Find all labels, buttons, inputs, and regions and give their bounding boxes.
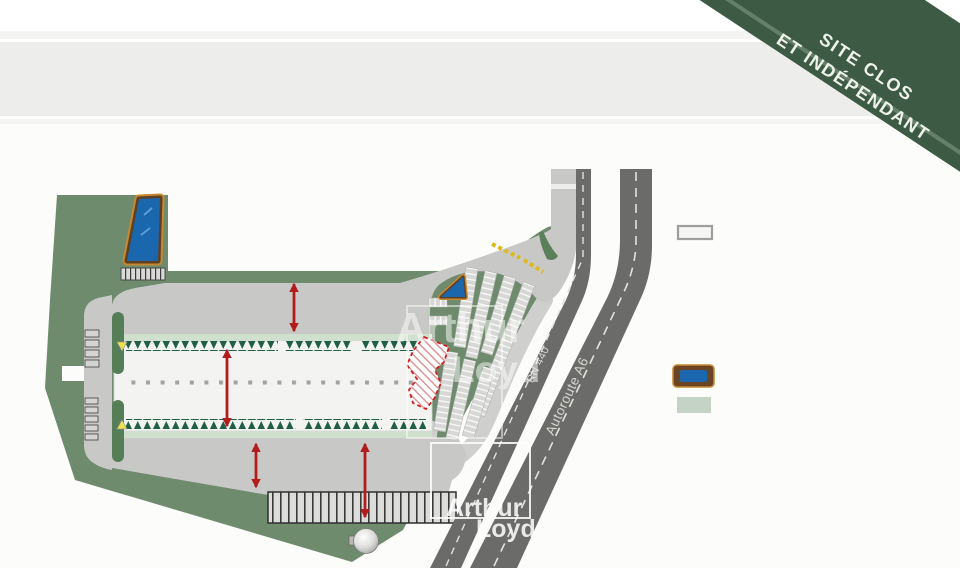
building-north-buffer bbox=[114, 334, 432, 341]
legend-swatch-basin bbox=[680, 370, 707, 382]
north-parking-strip bbox=[121, 268, 165, 280]
south-parking-strip bbox=[268, 492, 456, 523]
tree-row-south bbox=[126, 419, 426, 429]
watermark-text: Arthur bbox=[396, 304, 524, 351]
legend-swatch-building bbox=[678, 226, 712, 239]
site-plan-canvas: RN 440 Autoroute A6 Arthur Loyd Arthur L… bbox=[0, 0, 960, 568]
column-dotted-line bbox=[130, 380, 420, 385]
tree-row-gap bbox=[296, 419, 303, 429]
entrance-crosswalk bbox=[551, 184, 577, 189]
site-plan-page: RN 440 Autoroute A6 Arthur Loyd Arthur L… bbox=[0, 0, 960, 568]
tree-row-gap bbox=[352, 341, 361, 351]
tree-row-north bbox=[126, 341, 426, 351]
tree-row-gap bbox=[382, 419, 390, 429]
watermark-text: Loyd bbox=[452, 349, 540, 390]
west-hedge-south bbox=[112, 400, 124, 462]
header-stripe-bottom bbox=[0, 119, 960, 124]
legend-swatch-greenspace bbox=[677, 397, 711, 413]
building-south-buffer bbox=[114, 431, 432, 438]
building-interior bbox=[114, 341, 432, 431]
tree-row-gap bbox=[278, 341, 285, 351]
watermark-text: Loyd bbox=[476, 515, 536, 543]
